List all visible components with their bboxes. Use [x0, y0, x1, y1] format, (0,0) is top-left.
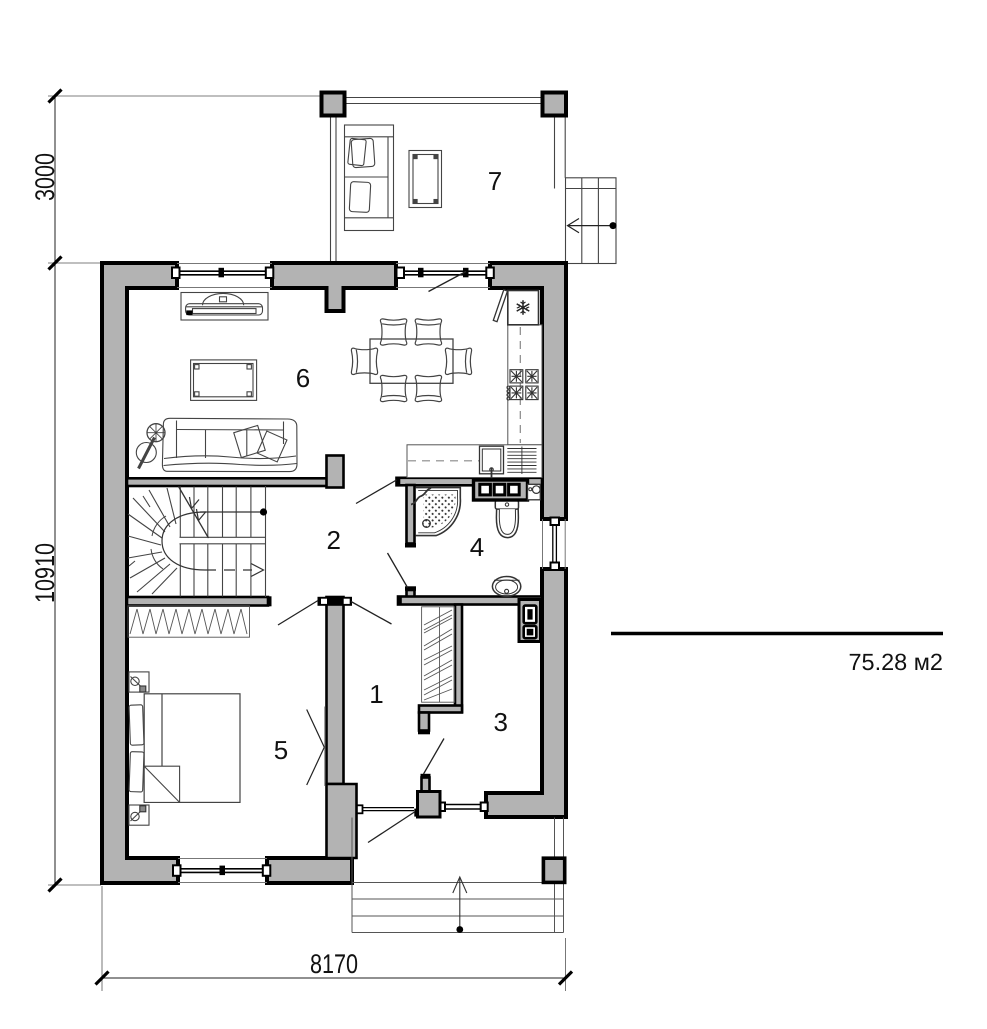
svg-text:4: 4 — [470, 532, 484, 562]
svg-text:3: 3 — [493, 707, 507, 737]
svg-text:2: 2 — [326, 525, 340, 555]
svg-text:6: 6 — [296, 363, 310, 393]
svg-text:3000: 3000 — [30, 153, 60, 201]
svg-text:7: 7 — [488, 166, 502, 196]
svg-text:8170: 8170 — [310, 949, 358, 979]
svg-text:75.28 м2: 75.28 м2 — [848, 649, 943, 675]
svg-text:1: 1 — [369, 679, 383, 709]
svg-text:10910: 10910 — [30, 543, 60, 603]
svg-text:5: 5 — [274, 735, 288, 765]
